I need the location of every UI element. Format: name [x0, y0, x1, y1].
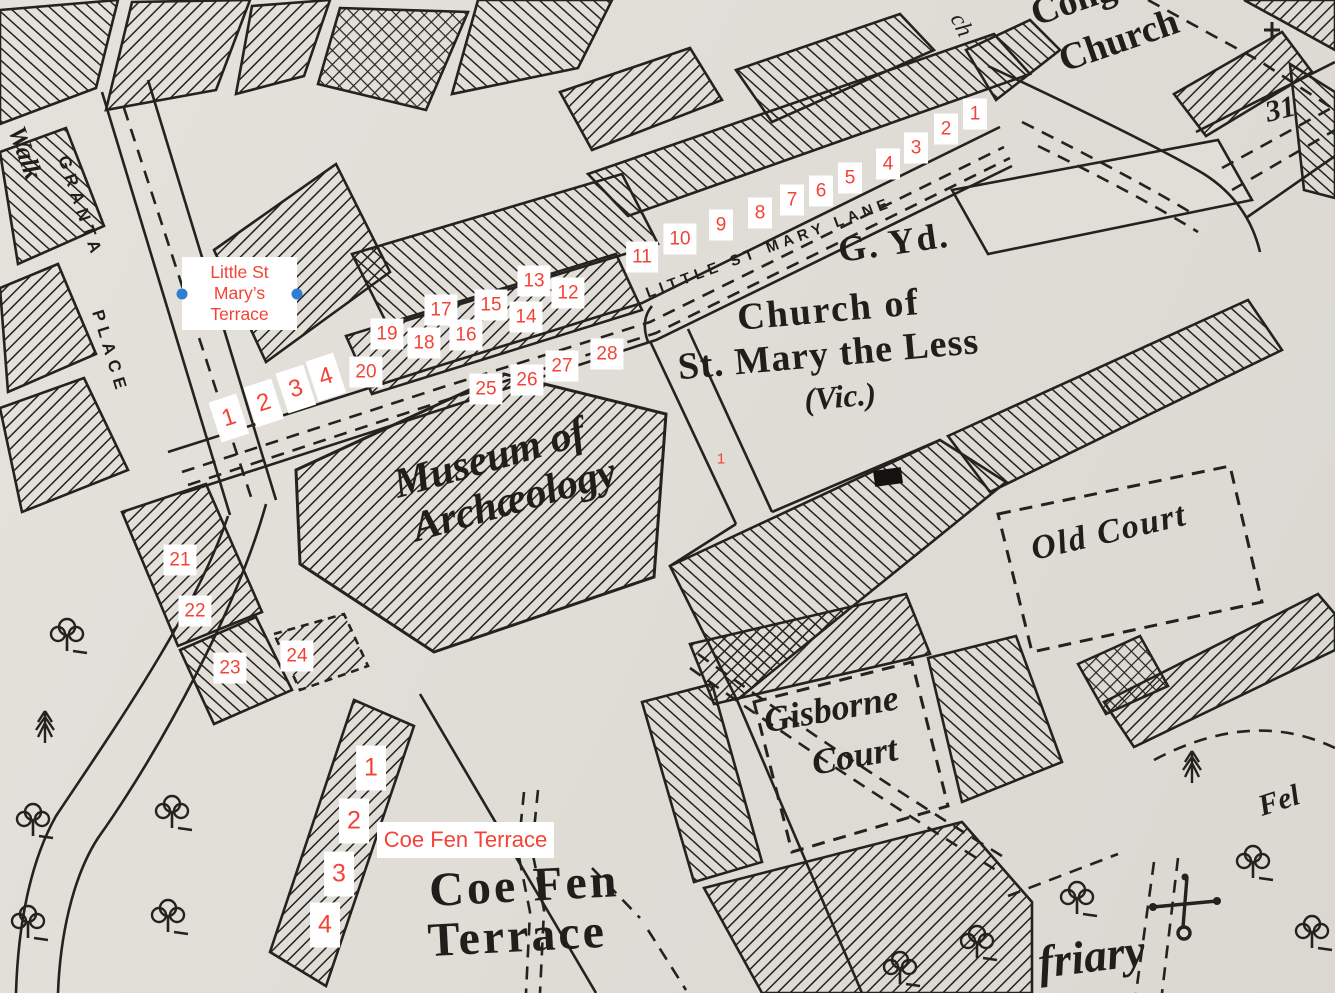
marker-9[interactable]: 9: [709, 210, 733, 241]
tree-icon: [156, 796, 192, 830]
building-block: [0, 264, 96, 392]
little-st-marys-terrace-label[interactable]: Little St Mary’s Terrace: [182, 257, 297, 330]
label-line: Coe Fen Terrace: [384, 827, 547, 852]
selection-handle-right[interactable]: [292, 288, 303, 299]
marker-13[interactable]: 13: [517, 266, 550, 297]
building-block-outline: [952, 140, 1252, 254]
building-block: [452, 0, 612, 94]
marker-8[interactable]: 8: [748, 198, 772, 229]
marker-1-plain[interactable]: 1: [717, 452, 725, 467]
marker-7[interactable]: 7: [780, 185, 804, 216]
marker-4[interactable]: 4: [310, 903, 340, 948]
marker-23[interactable]: 23: [213, 653, 246, 684]
right-dash: [1154, 731, 1335, 760]
building-block: [948, 300, 1282, 492]
marker-1[interactable]: 1: [963, 99, 987, 130]
marker-21[interactable]: 21: [163, 545, 196, 576]
marker-24[interactable]: 24: [280, 641, 313, 672]
conifer-icon: [36, 711, 54, 743]
buildings-layer: [0, 0, 1335, 993]
marker-1[interactable]: 1: [356, 746, 386, 791]
marker-10[interactable]: 10: [663, 224, 696, 255]
building-block: [106, 0, 250, 110]
marker-26[interactable]: 26: [510, 365, 543, 396]
marker-3[interactable]: 3: [324, 852, 354, 897]
marker-18[interactable]: 18: [407, 328, 440, 359]
friary-dash: [1008, 854, 1118, 896]
annotated-map-canvas: Walk GRANTA PLACE LITTLE ST MARY LANE G.…: [0, 0, 1335, 993]
map-base: Walk GRANTA PLACE LITTLE ST MARY LANE G.…: [0, 0, 1335, 993]
tree-icon: [1237, 846, 1273, 880]
gisborne-label-line2: Court: [809, 728, 902, 783]
marker-4[interactable]: 4: [876, 149, 900, 180]
marker-20[interactable]: 20: [349, 357, 382, 388]
friary-dash: [1162, 858, 1178, 993]
tree-icon: [51, 619, 87, 653]
building-block: [1290, 64, 1335, 198]
marker-22[interactable]: 22: [178, 596, 211, 627]
fel-label-fragment: Fel: [1253, 778, 1304, 823]
old-court-label: Old Court: [1027, 496, 1190, 568]
marker-25[interactable]: 25: [469, 374, 502, 405]
marker-2[interactable]: 2: [934, 114, 958, 145]
ch-label-fragment: ch: [945, 9, 978, 41]
tree-icon: [12, 906, 48, 940]
vic-label: (Vic.): [803, 375, 878, 417]
building-block: [236, 0, 330, 94]
building-block-glasshouse: [318, 8, 468, 110]
marker-5[interactable]: 5: [838, 163, 862, 194]
tree-icon: [1296, 916, 1332, 950]
fen-road-edge: [16, 516, 228, 993]
building-block: [928, 636, 1062, 802]
marker-2[interactable]: 2: [339, 799, 369, 844]
building-block: [560, 48, 722, 150]
marker-6[interactable]: 6: [809, 176, 833, 207]
marker-19[interactable]: 19: [370, 319, 403, 350]
building-block: [0, 378, 128, 512]
friary-label: friary: [1035, 924, 1148, 988]
label-line: Terrace: [182, 304, 297, 325]
coe-fen-terrace-label[interactable]: Coe Fen Terrace: [377, 822, 554, 858]
cross-symbol: [1149, 874, 1221, 940]
marker-17[interactable]: 17: [424, 295, 457, 326]
marker-14[interactable]: 14: [509, 302, 542, 333]
tree-icon: [1061, 882, 1097, 916]
label-line: Little St: [182, 262, 297, 283]
marker-3[interactable]: 3: [904, 133, 928, 164]
tree-icon: [152, 900, 188, 934]
marker-12[interactable]: 12: [551, 278, 584, 309]
selection-handle-left[interactable]: [177, 288, 188, 299]
coe-fen-map-label-line2: Terrace: [426, 905, 608, 967]
marker-27[interactable]: 27: [545, 351, 578, 382]
marker-15[interactable]: 15: [474, 290, 507, 321]
label-line: Mary’s: [182, 283, 297, 304]
conifer-icon: [1183, 751, 1201, 783]
marker-11[interactable]: 11: [626, 242, 658, 273]
coefen-dash: [648, 930, 686, 990]
marker-28[interactable]: 28: [590, 339, 623, 370]
building-block: [0, 0, 118, 124]
